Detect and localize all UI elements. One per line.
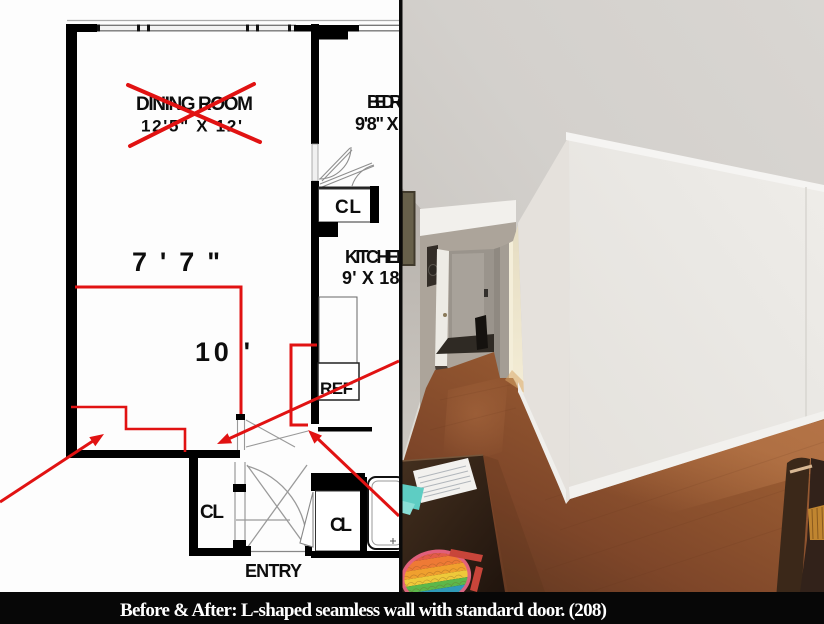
svg-text:ENTRY: ENTRY	[245, 561, 302, 581]
svg-text:Before & After: L-shaped seaml: Before & After: L-shaped seamless wall w…	[120, 600, 607, 621]
svg-text:CL: CL	[200, 502, 224, 523]
svg-text:7 ' 7 ": 7 ' 7 "	[132, 247, 220, 277]
svg-text:9' X 18': 9' X 18'	[342, 268, 404, 288]
svg-text:CL: CL	[330, 515, 352, 536]
svg-text:CL: CL	[335, 197, 361, 218]
